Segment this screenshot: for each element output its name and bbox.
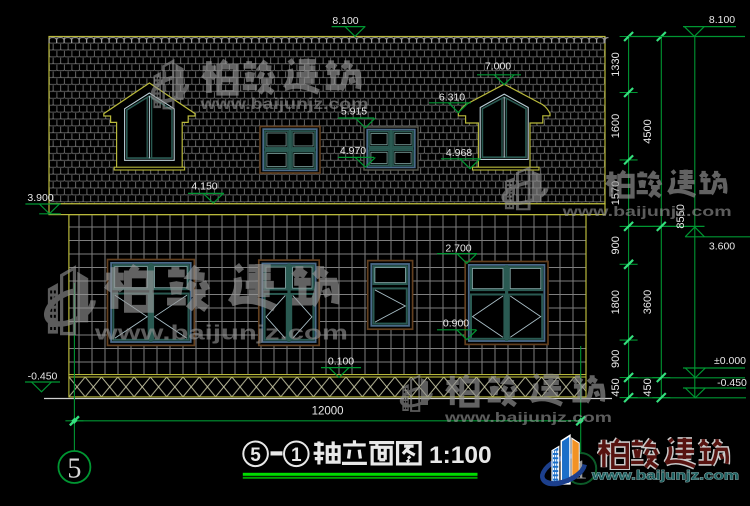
svg-text:900: 900: [610, 350, 622, 368]
svg-text:www.baijunjz.com: www.baijunjz.com: [94, 323, 348, 345]
svg-text:1600: 1600: [610, 114, 622, 138]
svg-text:1800: 1800: [610, 290, 622, 314]
svg-text:www.baijunjz.com: www.baijunjz.com: [591, 468, 739, 483]
svg-text:0.100: 0.100: [328, 355, 354, 367]
svg-text:4500: 4500: [642, 119, 654, 143]
svg-text:3.900: 3.900: [27, 192, 53, 204]
svg-text:1: 1: [291, 445, 302, 466]
svg-text:4.968: 4.968: [446, 147, 472, 159]
svg-text:12000: 12000: [312, 406, 344, 418]
svg-text:450: 450: [610, 378, 622, 396]
svg-text:900: 900: [610, 236, 622, 254]
svg-text:www.baijunjz.com: www.baijunjz.com: [444, 409, 612, 425]
svg-text:8.100: 8.100: [709, 14, 735, 26]
svg-text:3.600: 3.600: [709, 241, 735, 253]
svg-text:www.baijunjz.com: www.baijunjz.com: [199, 96, 368, 113]
svg-text:-0.450: -0.450: [28, 371, 58, 383]
svg-text:±0.000: ±0.000: [714, 355, 746, 367]
svg-text:1:100: 1:100: [429, 442, 492, 469]
svg-text:7.000: 7.000: [485, 61, 511, 73]
svg-text:450: 450: [642, 378, 654, 396]
svg-text:0.900: 0.900: [443, 318, 469, 330]
svg-text:2.700: 2.700: [445, 243, 471, 255]
svg-text:www.baijunjz.com: www.baijunjz.com: [561, 203, 731, 219]
svg-text:1330: 1330: [610, 52, 622, 76]
svg-text:4.150: 4.150: [191, 181, 217, 193]
svg-text:-0.450: -0.450: [717, 377, 747, 389]
svg-text:4.970: 4.970: [340, 145, 366, 157]
svg-text:5: 5: [250, 445, 261, 466]
svg-text:6.310: 6.310: [439, 92, 465, 104]
svg-text:5: 5: [67, 454, 81, 485]
svg-text:8.100: 8.100: [332, 15, 358, 27]
svg-text:3600: 3600: [642, 290, 654, 314]
